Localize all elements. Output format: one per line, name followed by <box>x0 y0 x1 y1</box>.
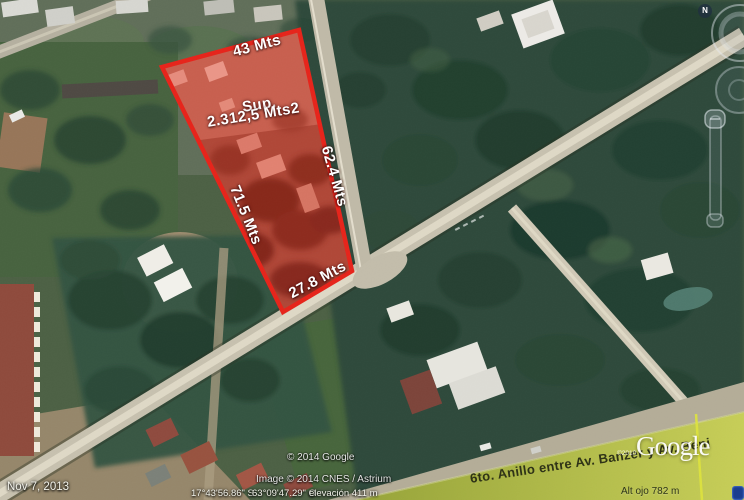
google-earth-viewport[interactable]: 43 Mts Sup. 2.312,5 Mts2 71.5 Mts 62.4 M… <box>0 0 744 500</box>
image-grain <box>0 0 744 500</box>
elevation-readout: elevación 411 m <box>309 488 377 499</box>
satellite-map[interactable] <box>0 0 744 500</box>
imagery-date: Nov 7, 2013 <box>7 481 69 493</box>
north-button[interactable]: N <box>698 4 712 18</box>
copyright-notice: © 2014 Google <box>287 452 354 463</box>
imagery-credit: Image © 2014 CNES / Astrium <box>256 474 391 485</box>
corner-icon <box>732 486 744 500</box>
logo-copyright: ©2010 <box>617 450 636 457</box>
eye-altitude-readout: Alt ojo 782 m <box>621 486 679 497</box>
longitude-readout: 63°09'47.29" O <box>252 488 316 499</box>
latitude-readout: 17°43'56.86" S <box>191 488 254 499</box>
google-logo: Google <box>636 431 709 462</box>
